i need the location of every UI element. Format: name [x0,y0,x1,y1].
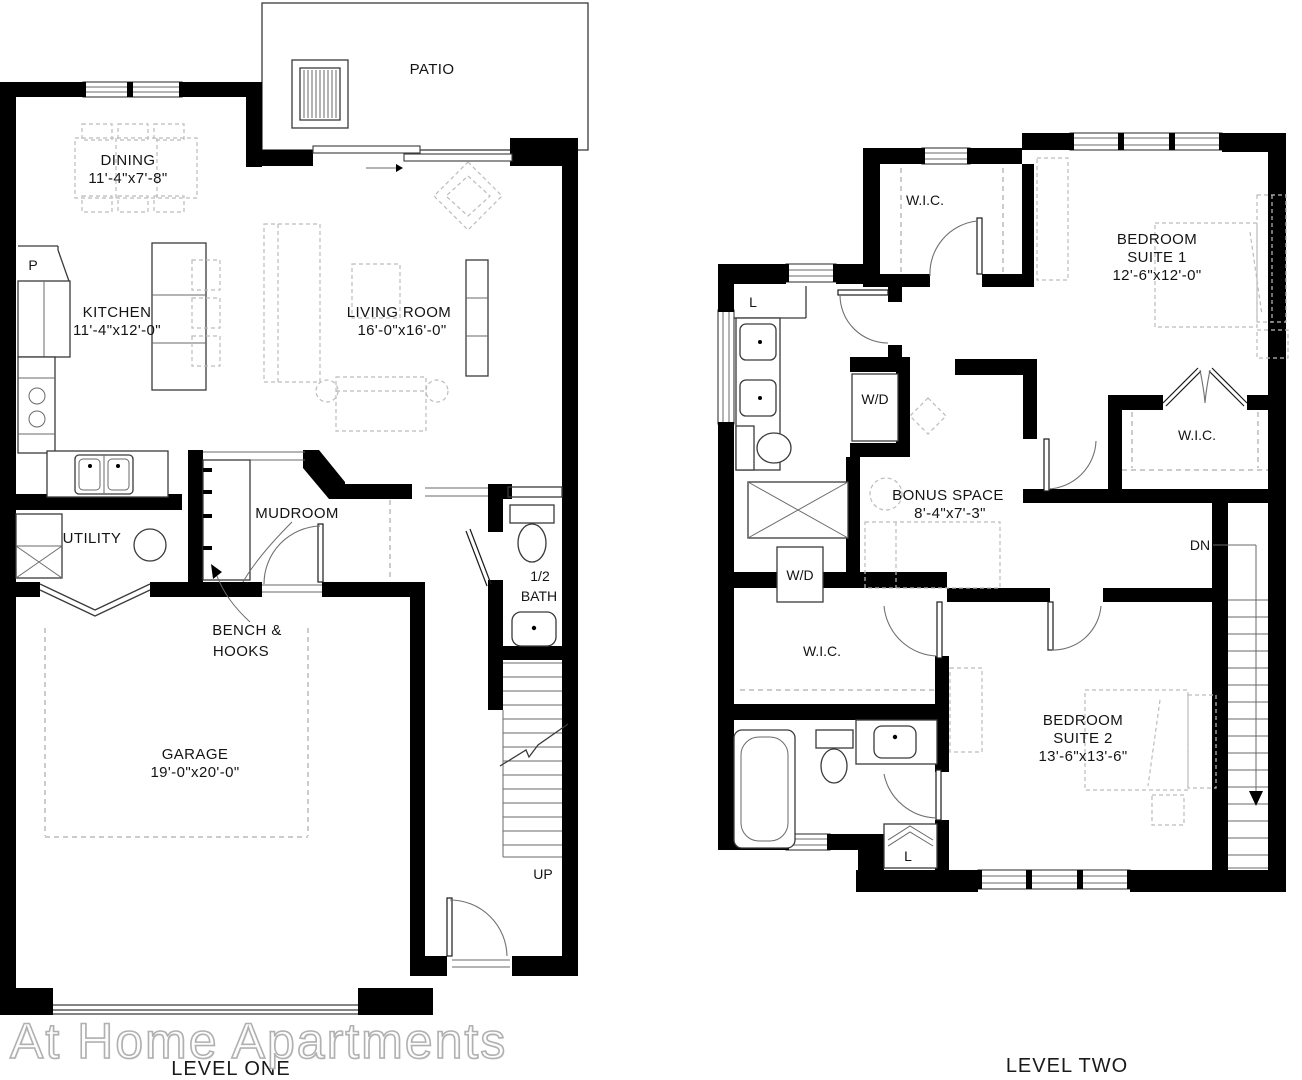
dining-dims: 11'-4"x7'-8" [88,170,167,187]
bedroom2-dims: 13'-6"x13'-6" [1038,748,1127,765]
bedroom2-door [1048,602,1101,650]
utility-label: UTILITY [63,530,122,547]
bedroom2-label-2: SUITE 2 [1053,730,1112,747]
patio-label: PATIO [410,61,455,78]
level-one-stairs [500,663,568,857]
stairs-dn-label: DN [1190,537,1210,553]
bedroom1-windows [1068,133,1225,150]
water-heater-icon [134,529,166,561]
floor-plan-drawing: PATIO DINING 11'-4"x7'-8" KITCHEN 11'-4"… [0,0,1302,1080]
bedroom2-windows [976,870,1133,889]
kitchen-island [152,243,206,390]
utility-bay-window [40,584,150,616]
watermark-text: At Home Apartments [10,1012,507,1070]
shower-suite1 [748,482,848,538]
level-two-stairs [1228,560,1268,868]
stair-break-line [500,724,568,766]
bedroom1-door [1044,439,1096,491]
garage-dims: 19'-0"x20'-0" [150,764,239,781]
tub-suite2 [734,730,795,848]
wic-hall-label: W.I.C. [906,192,944,208]
mudroom-bench [203,460,250,580]
kitchen-sink-counter [47,451,168,497]
level-one-plan: PATIO DINING 11'-4"x7'-8" KITCHEN 11'-4"… [0,3,588,1080]
pantry-label: P [28,257,37,273]
grill-icon [292,60,348,128]
washer-dryer-2-label: W/D [786,567,813,583]
bonus-space-dims: 8'-4"x7'-3" [914,505,986,522]
mudroom-garage-door [264,524,323,584]
mudroom-opening [203,452,305,460]
mudroom-garage-door-threshold [262,585,322,592]
bench-hooks-label-1: BENCH & [212,622,281,639]
bedroom2-label-1: BEDROOM [1043,712,1123,729]
bath-hall-door [838,290,888,343]
wic-hall-rods [901,168,1003,272]
linen-upper-label: L [749,294,757,310]
washer-dryer-1-label: W/D [861,391,888,407]
dining-label: DINING [101,152,156,169]
half-bath-label-2: BATH [521,588,557,604]
mudroom-label: MUDROOM [255,505,339,522]
mudroom-callout-leaders [211,522,292,622]
level-one-walls [0,82,578,1015]
bath-hall-window-top [784,264,838,282]
half-bath-label-1: 1/2 [530,568,550,584]
floor-plan-page: PATIO DINING 11'-4"x7'-8" KITCHEN 11'-4"… [0,0,1302,1080]
toilet-suite2 [816,730,853,783]
half-bath-toilet [510,505,554,562]
refrigerator [18,281,70,357]
stairs-up-label: UP [533,866,552,882]
level-two-caption: LEVEL TWO [1006,1055,1128,1077]
bedroom1-label-1: BEDROOM [1117,231,1197,248]
living-room-furniture [264,162,502,431]
bedroom1-dims: 12'-6"x12'-0" [1112,267,1201,284]
garage-label: GARAGE [162,746,229,763]
half-bath-door [466,529,491,586]
wic-suite2-door [884,602,942,658]
linen-upper-shelf [734,286,806,318]
entry-door [447,898,507,956]
living-room-label: LIVING ROOM [347,304,451,321]
hall-opening [425,488,488,496]
wic-hall-door [930,218,982,276]
half-bath-plumbing-wall [508,487,562,497]
half-bath-sink [512,612,556,646]
vanity-suite2 [856,720,937,764]
bonus-space-label: BONUS SPACE [892,487,1004,504]
living-room-dims: 16'-0"x16'-0" [357,322,446,339]
kitchen-dims: 11'-4"x12'-0" [73,322,161,339]
wic-suite2-label: W.I.C. [803,643,841,659]
utility-washer [16,514,62,578]
wic-suite1-french-doors [1163,368,1247,406]
kitchen-label: KITCHEN [83,304,152,321]
washer-dryer-1-box [852,374,898,441]
level-two-plan: W.I.C. BEDROOM SUITE 1 12'-6"x12'-0" L W… [718,133,1288,1077]
bedroom1-label-2: SUITE 1 [1127,249,1186,266]
range-counter [18,357,55,453]
linen-lower-label: L [904,848,912,864]
bath-side-window [718,306,734,428]
bench-hooks-label-2: HOOKS [213,643,269,660]
wic-hall-window [920,148,972,164]
wic-suite1-label: W.I.C. [1178,427,1216,443]
pantry-closet [18,246,70,284]
dining-window [80,82,185,97]
entry-door-threshold [452,960,510,967]
bath2-door [884,770,941,820]
